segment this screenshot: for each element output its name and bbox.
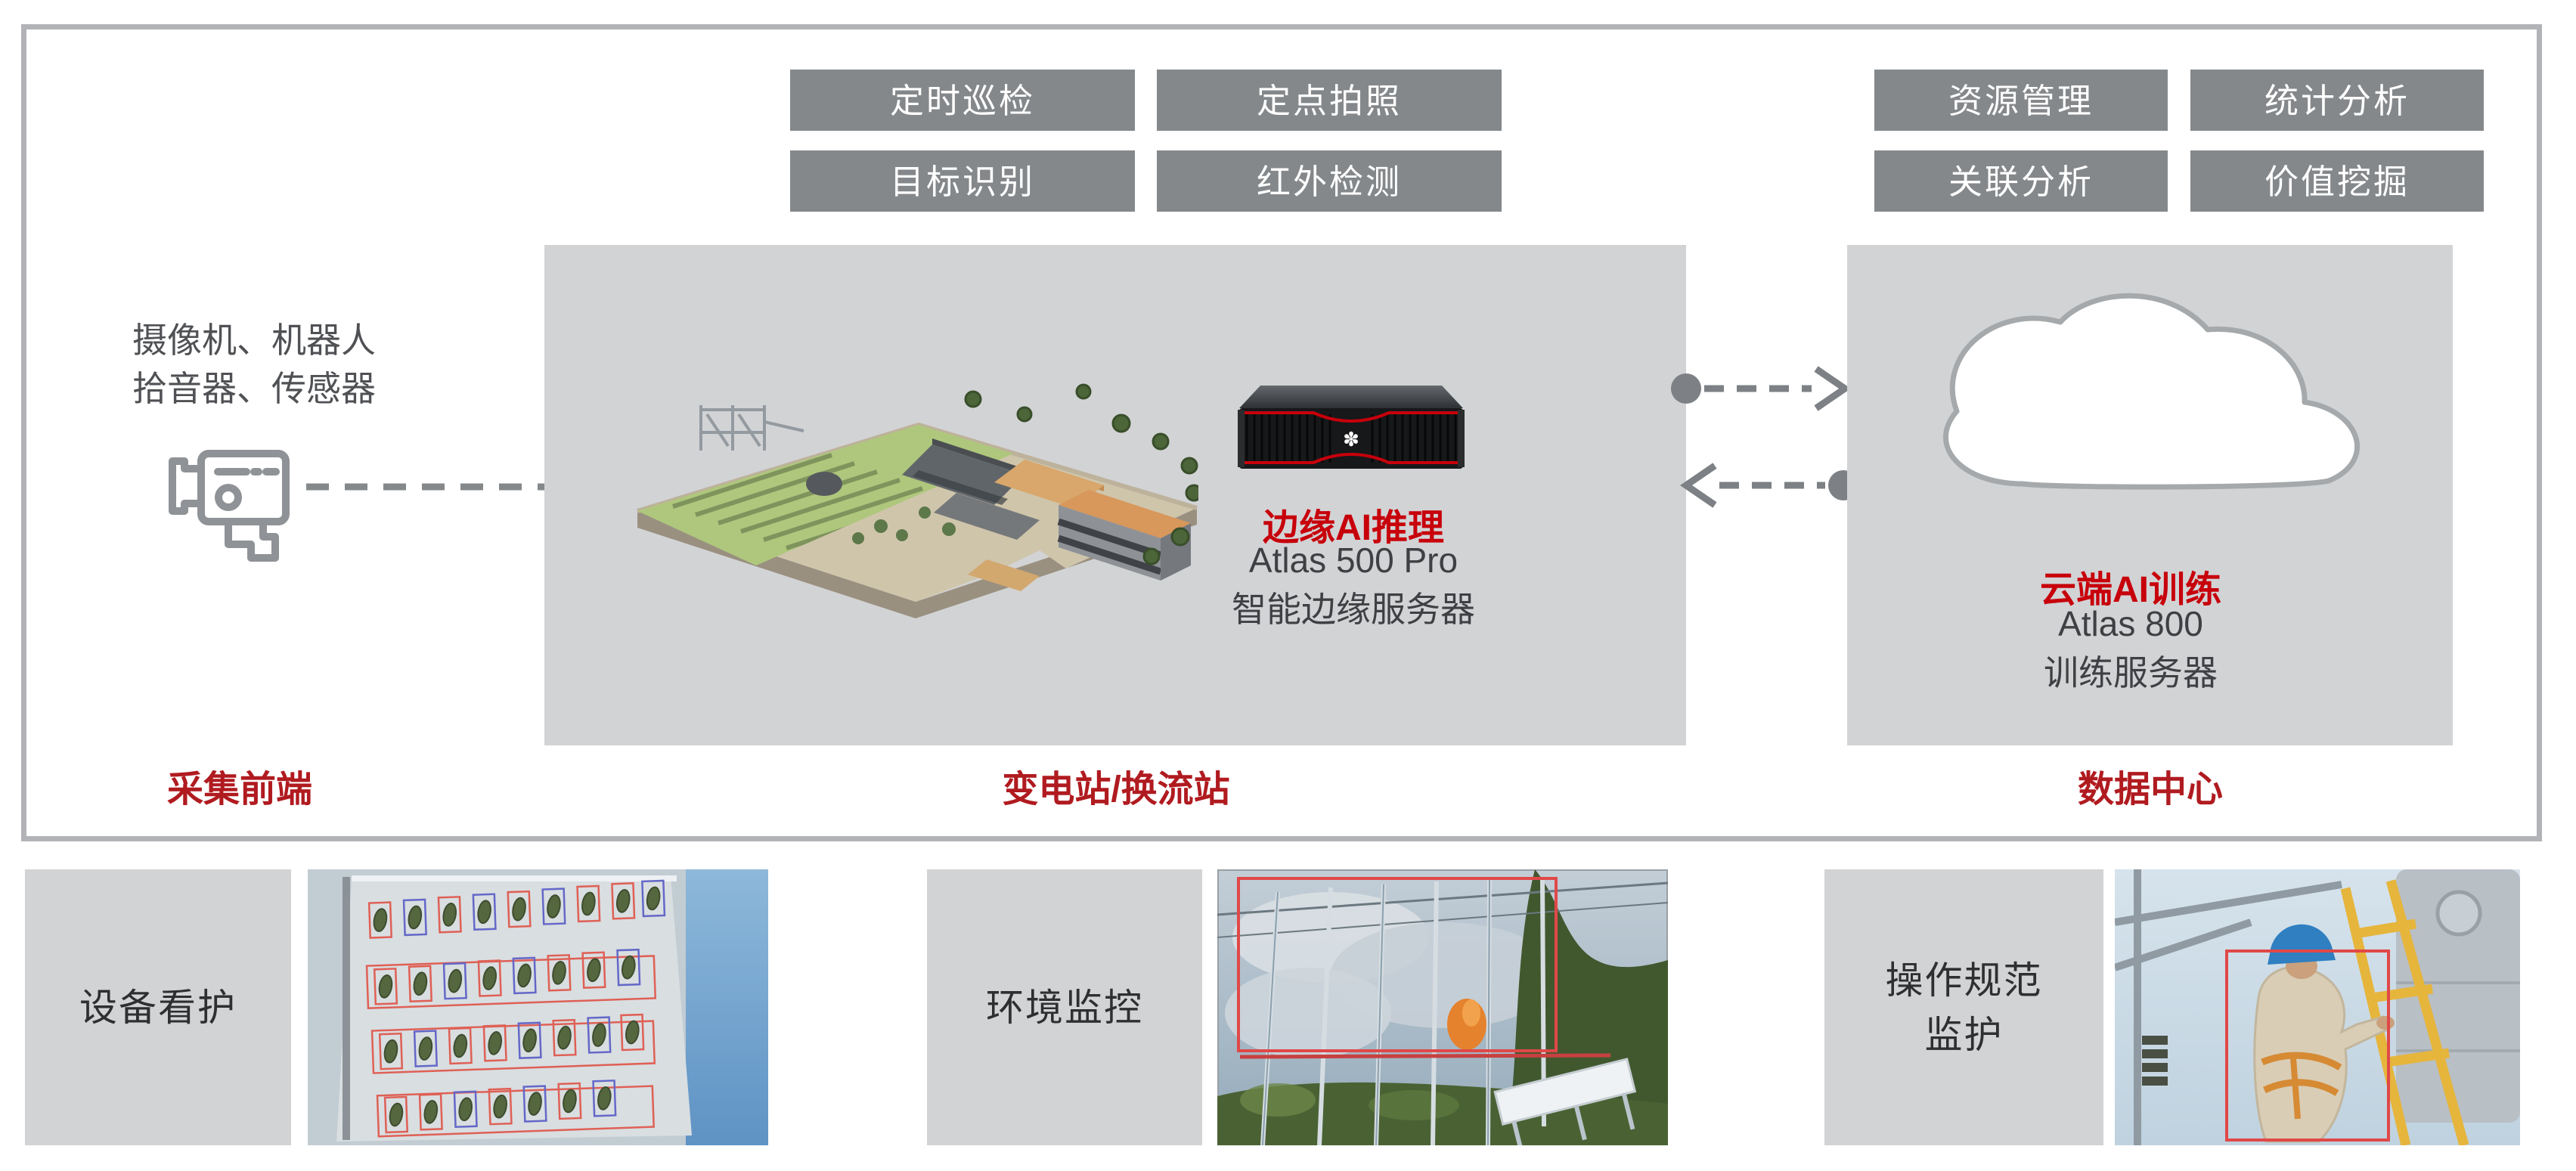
camera-to-edge-dashed-line [305, 478, 547, 496]
scenario-label: 环境监控 [986, 980, 1143, 1035]
zone-label-substation: 变电站/换流站 [965, 759, 1267, 812]
edge-ai-model: Atlas 500 Pro [1164, 540, 1542, 581]
scenario-box-operation: 操作规范 监护 [1824, 869, 2103, 1145]
cloud-to-edge-arrow [1672, 461, 1861, 510]
chip-target-recognition: 目标识别 [790, 150, 1135, 212]
frontend-devices-line1: 摄像机、机器人 [132, 316, 556, 364]
cloud-icon [1905, 281, 2404, 500]
chip-statistical-analysis: 统计分析 [2190, 70, 2484, 131]
chip-correlation-analysis: 关联分析 [1874, 150, 2168, 212]
scenario-label: 设备看护 [79, 980, 237, 1035]
chip-value-mining: 价值挖掘 [2190, 150, 2484, 212]
cctv-camera-icon [160, 431, 304, 571]
frontend-devices-text: 摄像机、机器人 拾音器、传感器 [132, 316, 556, 413]
cloud-ai-model: Atlas 800 [1942, 603, 2320, 644]
chip-infrared-detection: 红外检测 [1157, 150, 1502, 212]
solution-diagram: 定时巡检 定点拍照 目标识别 红外检测 资源管理 统计分析 关联分析 价值挖掘 … [0, 0, 2576, 1171]
zone-label-datacenter: 数据中心 [1999, 759, 2302, 812]
scenario-label: 操作规范 [1886, 953, 2043, 1008]
scenario-box-environment: 环境监控 [927, 869, 1202, 1145]
worker-safety-photo [2115, 869, 2520, 1145]
atlas-500-pro-server: ✽ [1238, 383, 1465, 473]
gantry-structure [701, 405, 804, 451]
zone-label-frontend: 采集前端 [88, 759, 391, 812]
edge-ai-desc: 智能边缘服务器 [1164, 582, 1542, 632]
chip-resource-management: 资源管理 [1874, 70, 2168, 131]
chip-fixed-point-photo: 定点拍照 [1157, 70, 1502, 131]
fire-smoke-detection-photo [1217, 869, 1668, 1145]
edge-to-cloud-arrow [1668, 364, 1857, 413]
cloud-ai-desc: 训练服务器 [1942, 646, 2320, 695]
scenario-box-equipment: 设备看护 [25, 869, 291, 1145]
substation-3d-model [631, 378, 1198, 620]
frontend-devices-line2: 拾音器、传感器 [132, 364, 556, 413]
equipment-detection-photo [308, 869, 768, 1145]
huawei-logo-icon: ✽ [1343, 428, 1359, 451]
chip-scheduled-inspection: 定时巡检 [790, 70, 1135, 131]
scenario-label-line2: 监护 [1925, 1008, 2004, 1062]
